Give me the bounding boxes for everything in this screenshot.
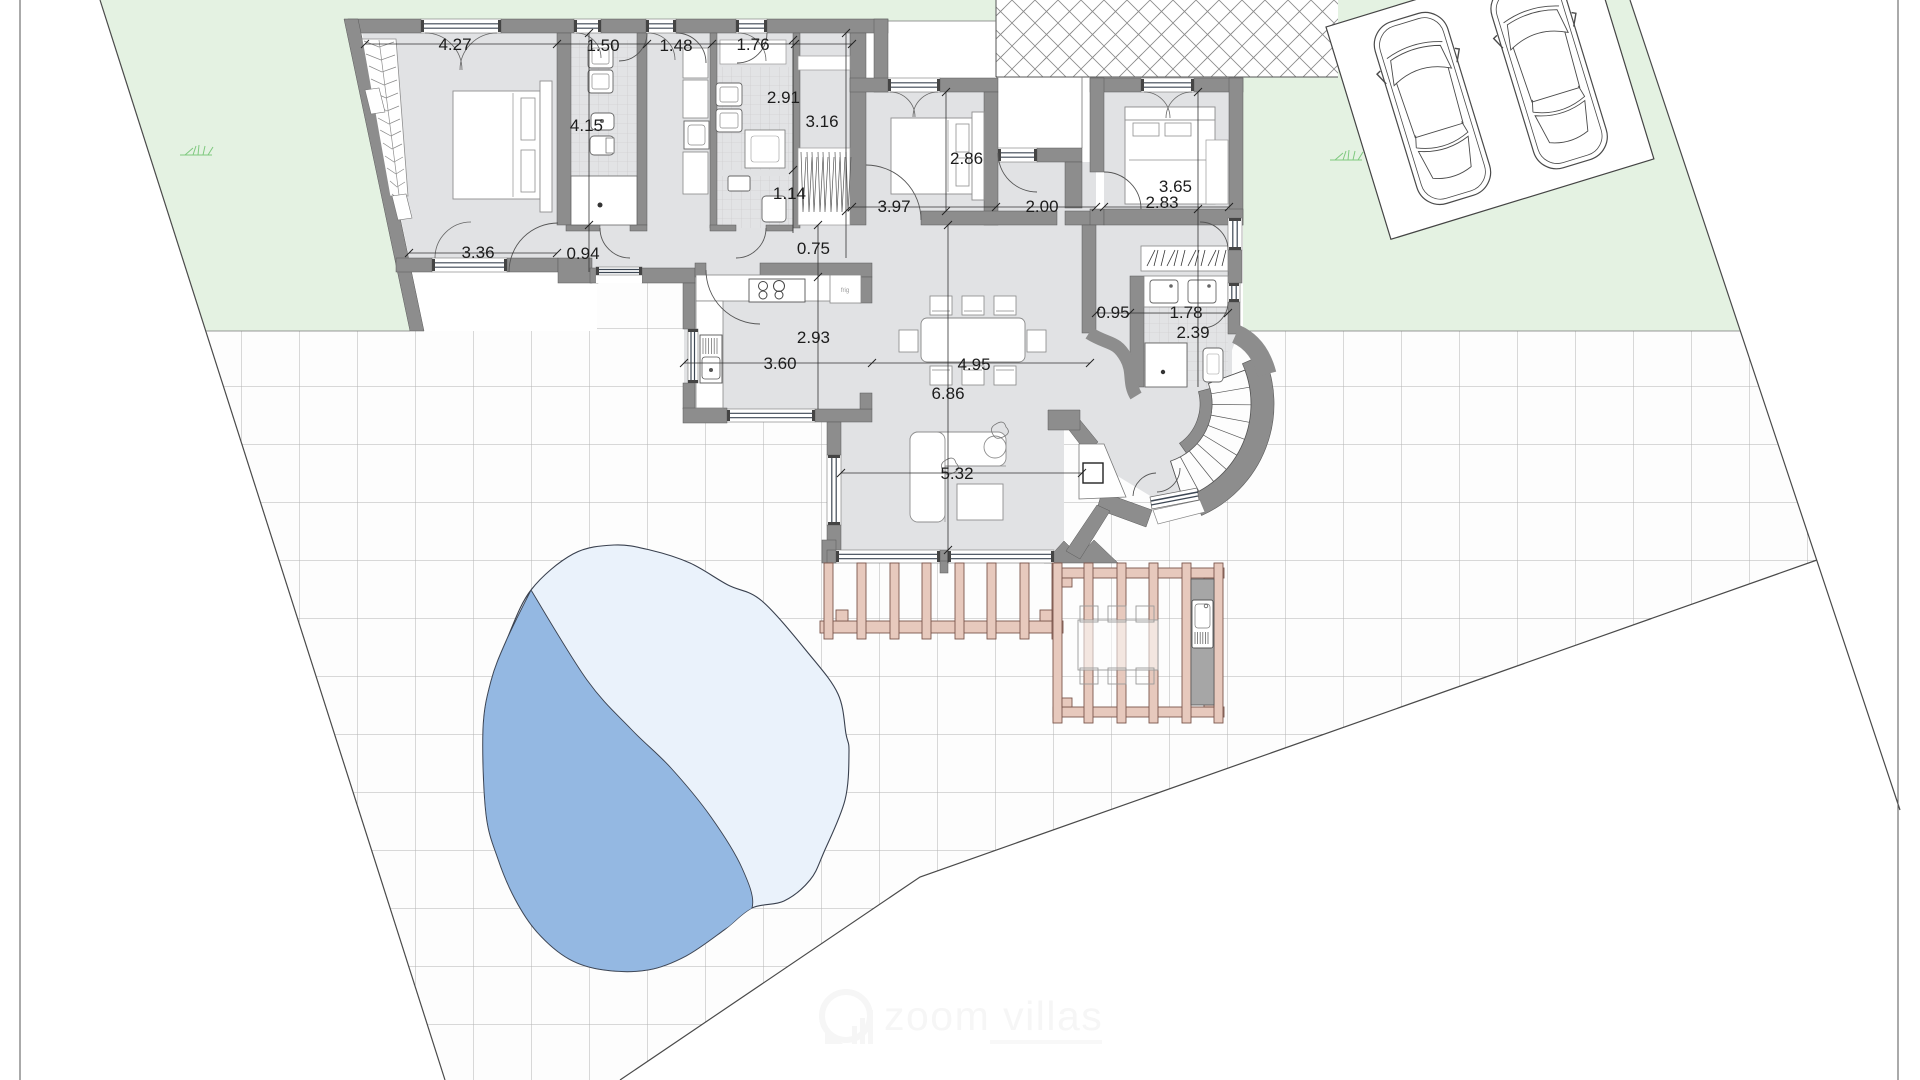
svg-text:1.48: 1.48 xyxy=(659,36,692,55)
svg-text:3.36: 3.36 xyxy=(461,243,494,262)
svg-text:4.95: 4.95 xyxy=(957,355,990,374)
svg-text:3.97: 3.97 xyxy=(877,197,910,216)
svg-text:2.93: 2.93 xyxy=(797,328,830,347)
svg-text:1.78: 1.78 xyxy=(1169,303,1202,322)
svg-text:4.27: 4.27 xyxy=(438,35,471,54)
svg-text:4.15: 4.15 xyxy=(570,116,603,135)
svg-text:zoom villas: zoom villas xyxy=(884,993,1103,1039)
svg-text:6.86: 6.86 xyxy=(931,384,964,403)
svg-text:3.60: 3.60 xyxy=(763,354,796,373)
svg-text:0.75: 0.75 xyxy=(797,239,830,258)
svg-text:1.76: 1.76 xyxy=(736,35,769,54)
svg-text:2.39: 2.39 xyxy=(1176,323,1209,342)
svg-text:3.16: 3.16 xyxy=(805,112,838,131)
svg-text:5.32: 5.32 xyxy=(940,464,973,483)
svg-text:2.91: 2.91 xyxy=(767,88,800,107)
svg-text:0.94: 0.94 xyxy=(566,244,599,263)
svg-text:3.65: 3.65 xyxy=(1159,177,1192,196)
svg-text:0.95: 0.95 xyxy=(1096,303,1129,322)
svg-text:1.50: 1.50 xyxy=(586,36,619,55)
svg-text:1.14: 1.14 xyxy=(773,184,806,203)
svg-text:frig: frig xyxy=(841,288,849,294)
svg-text:2.86: 2.86 xyxy=(950,149,983,168)
svg-text:2.00: 2.00 xyxy=(1025,197,1058,216)
